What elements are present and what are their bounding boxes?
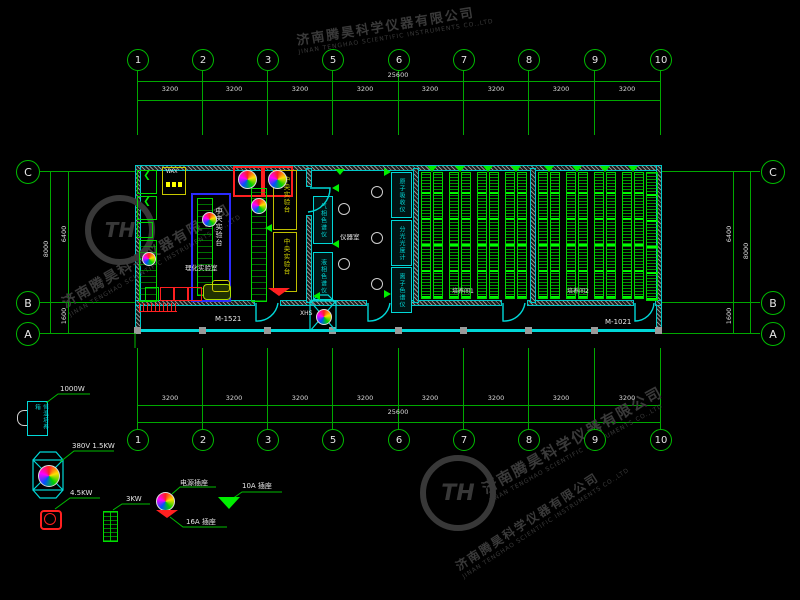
axis-circle-left-C: C <box>16 160 40 184</box>
legend-label-380v: 380V 1.5KW <box>72 442 115 450</box>
equipment-fan-icon <box>202 212 217 227</box>
dim-total-top: 25600 <box>368 71 428 79</box>
legend-label-power-socket: 电源插座 <box>180 478 208 488</box>
exhaust-fan-icon <box>316 309 332 325</box>
dim-total-bottom: 25600 <box>368 408 428 416</box>
legend-10a-triangle-icon <box>218 497 240 509</box>
socket-triangle-icon <box>335 169 345 175</box>
legend-fan-icon <box>38 465 60 487</box>
dim-bay: 3200 <box>350 85 380 93</box>
legend-label-16a: 16A 插座 <box>186 517 216 527</box>
axis-circle-top-6: 6 <box>388 49 410 71</box>
cad-floorplan-canvas: 济南腾昊科学仪器有限公司 JINAN TENGHAO SCIENTIFIC IN… <box>0 0 800 600</box>
equipment-fan-icon <box>142 252 156 266</box>
dim-left-ba: 1600 <box>60 301 68 331</box>
socket-triangle-icon <box>332 184 339 192</box>
dim-bay: 3200 <box>546 85 576 93</box>
axis-circle-top-9: 9 <box>584 49 606 71</box>
axis-circle-right-A: A <box>761 322 785 346</box>
socket-triangle-icon <box>483 166 493 172</box>
dim-bay: 3200 <box>481 85 511 93</box>
axis-circle-bottom-9: 9 <box>584 429 606 451</box>
axis-circle-bottom-5: 5 <box>322 429 344 451</box>
axis-circle-bottom-10: 10 <box>650 429 672 451</box>
socket-triangle-red-icon <box>268 288 290 296</box>
socket-triangle-icon <box>427 166 437 172</box>
room-label-instrument: 仪器室 <box>340 231 360 241</box>
legend-16a-triangle-icon <box>156 510 178 518</box>
socket-triangle-icon <box>455 166 465 172</box>
axis-circle-bottom-3: 3 <box>257 429 279 451</box>
axis-circle-top-5: 5 <box>322 49 344 71</box>
dim-right-ba: 1600 <box>725 301 733 331</box>
dim-bay: 3200 <box>350 394 380 402</box>
axis-circle-bottom-1: 1 <box>127 429 149 451</box>
dim-bay: 3200 <box>155 85 185 93</box>
legend-socket-fan-icon <box>156 492 175 511</box>
dim-bay: 3200 <box>612 394 642 402</box>
dim-bay: 3200 <box>612 85 642 93</box>
socket-triangle-icon <box>511 166 521 172</box>
dim-bay: 3200 <box>285 394 315 402</box>
equipment-fan-icon <box>251 198 267 214</box>
centrifuge-fan-icon <box>268 170 287 189</box>
dim-bay: 3200 <box>546 394 576 402</box>
axis-circle-bottom-6: 6 <box>388 429 410 451</box>
shaft-label: XHS <box>300 310 312 317</box>
legend-label-10a: 10A 插座 <box>242 481 272 491</box>
axis-circle-top-7: 7 <box>453 49 475 71</box>
socket-triangle-icon <box>384 168 391 176</box>
legend-label-1000w: 1000W <box>60 385 85 393</box>
dim-bay: 3200 <box>219 394 249 402</box>
door-label-right: M-1021 <box>605 318 631 326</box>
dim-bay: 3200 <box>285 85 315 93</box>
axis-circle-top-3: 3 <box>257 49 279 71</box>
dim-bay: 3200 <box>155 394 185 402</box>
socket-triangle-icon <box>628 166 638 172</box>
room-label-culture1: 培养间1 <box>452 286 474 295</box>
socket-triangle-icon <box>544 166 554 172</box>
axis-circle-right-B: B <box>761 291 785 315</box>
socket-triangle-icon <box>332 240 339 248</box>
axis-circle-left-B: B <box>16 291 40 315</box>
dim-left-cb: 6400 <box>60 219 68 249</box>
legend-label-45kw: 4.5KW <box>70 489 92 497</box>
vector-decorations <box>0 0 800 600</box>
axis-circle-bottom-7: 7 <box>453 429 475 451</box>
dim-left-overall: 8000 <box>42 234 50 264</box>
socket-triangle-icon <box>384 290 391 298</box>
room-label-culture2: 培养间2 <box>567 286 589 295</box>
dim-bay: 3200 <box>415 85 445 93</box>
dim-bay: 3200 <box>481 394 511 402</box>
legend-label-3kw: 3KW <box>126 495 142 503</box>
axis-circle-bottom-8: 8 <box>518 429 540 451</box>
dim-right-cb: 6400 <box>725 219 733 249</box>
socket-triangle-icon <box>600 166 610 172</box>
door-label-left: M-1521 <box>215 315 241 323</box>
axis-circle-left-A: A <box>16 322 40 346</box>
room-label-lab: 理化实验室 <box>185 262 218 272</box>
axis-circle-top-1: 1 <box>127 49 149 71</box>
dim-right-overall: 8000 <box>742 236 750 266</box>
socket-triangle-icon <box>572 166 582 172</box>
socket-triangle-icon <box>265 224 272 232</box>
axis-circle-top-10: 10 <box>650 49 672 71</box>
axis-circle-top-2: 2 <box>192 49 214 71</box>
axis-circle-top-8: 8 <box>518 49 540 71</box>
dim-bay: 3200 <box>219 85 249 93</box>
centrifuge-fan-icon <box>238 170 257 189</box>
socket-triangle-icon <box>313 292 320 300</box>
axis-circle-bottom-2: 2 <box>192 429 214 451</box>
axis-circle-right-C: C <box>761 160 785 184</box>
dim-bay: 3200 <box>415 394 445 402</box>
